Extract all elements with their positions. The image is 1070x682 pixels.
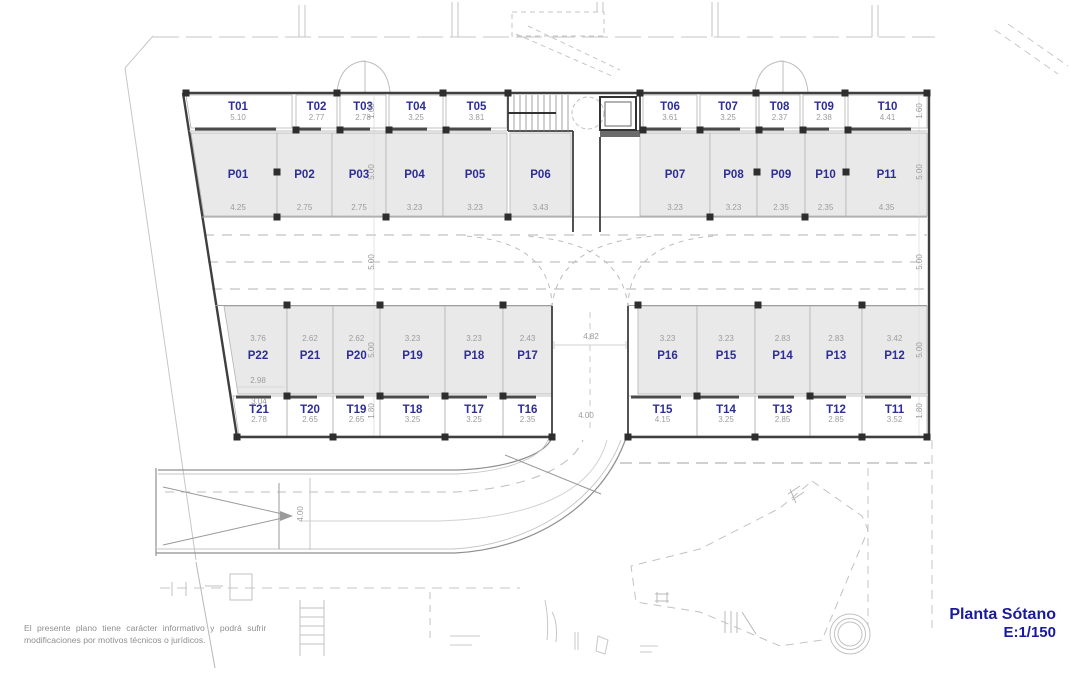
vertical-dim-right: 5.00 [915, 164, 924, 180]
unit-dim-P08: 3.23 [726, 203, 742, 212]
unit-label-T07: T07 [718, 101, 738, 113]
floor-plan-sheet: T015.10T022.77T032.78T043.25T053.81T063.… [0, 0, 1070, 682]
column [924, 434, 931, 441]
unit-dim-T07: 3.25 [720, 113, 736, 122]
column [500, 393, 507, 400]
unit-dim-T15: 4.15 [655, 415, 671, 424]
unit-dim-T19: 2.65 [349, 415, 365, 424]
unit-dim-P10: 2.35 [818, 203, 834, 212]
disclaimer-line-2: modificaciones por motivos técnicos o ju… [24, 634, 274, 646]
vertical-dim-left: 1.60 [367, 103, 376, 119]
unit-label-P22: P22 [248, 350, 268, 362]
basement-plan-drawing: T015.10T022.77T032.78T043.25T053.81T063.… [0, 0, 1070, 682]
column [500, 302, 507, 309]
unit-label-P13: P13 [826, 350, 846, 362]
unit-label-P08: P08 [723, 169, 744, 181]
unit-label-P21: P21 [300, 350, 321, 362]
column [635, 302, 642, 309]
column [383, 214, 390, 221]
column [293, 127, 300, 134]
overhead-ramp-outline [512, 12, 620, 76]
column [754, 169, 761, 176]
unit-dim-P18: 3.23 [466, 334, 482, 343]
unit-dim-T06: 3.61 [662, 113, 678, 122]
column [377, 302, 384, 309]
column [442, 393, 449, 400]
unit-dim-P06: 3.43 [533, 203, 549, 212]
column [755, 302, 762, 309]
column [337, 127, 344, 134]
disclaimer-note: El presente plano tiene carácter informa… [24, 622, 274, 646]
unit-dim-P13: 2.83 [828, 334, 844, 343]
unit-dim-T21: 2.78 [251, 415, 267, 424]
unit-dim-P21: 2.62 [302, 334, 318, 343]
column [443, 127, 450, 134]
column [505, 90, 512, 97]
sheet-title: Planta Sótano [836, 606, 1056, 624]
unit-label-T08: T08 [770, 101, 790, 113]
unit-dim-above-T21: 3.04 [251, 397, 267, 406]
column [386, 127, 393, 134]
unit-dim-T17: 3.25 [466, 415, 482, 424]
unit-label-T02: T02 [307, 101, 327, 113]
unit-label-P02: P02 [294, 169, 314, 181]
unit-dim-T02: 2.77 [309, 113, 325, 122]
unit-label-P19: P19 [402, 350, 422, 362]
column [807, 393, 814, 400]
column [274, 169, 281, 176]
unit-label-P01: P01 [228, 169, 249, 181]
column [284, 393, 291, 400]
unit-label-T05: T05 [467, 101, 487, 113]
unit-label-T10: T10 [878, 101, 898, 113]
column [753, 90, 760, 97]
column [845, 127, 852, 134]
unit-dim-P14: 2.83 [775, 334, 791, 343]
unit-dim-P16: 3.23 [660, 334, 676, 343]
vertical-dim-right: 1.80 [915, 403, 924, 419]
column [637, 90, 644, 97]
unit-label-P07: P07 [665, 169, 685, 181]
column [924, 90, 931, 97]
unit-label-P11: P11 [877, 169, 897, 181]
column [625, 434, 632, 441]
ramp-top-width-dim: 4.82 [583, 332, 599, 341]
vertical-dim-right: 5.00 [915, 342, 924, 358]
unit-label-P06: P06 [530, 169, 550, 181]
pool-ladder-icons [655, 486, 804, 634]
entrance-door-swings [337, 61, 808, 92]
unit-label-P17: P17 [517, 350, 537, 362]
unit-label-P05: P05 [465, 169, 486, 181]
unit-label-T01: T01 [228, 101, 248, 113]
column [234, 434, 241, 441]
column [842, 90, 849, 97]
unit-dim-P11: 4.35 [879, 203, 895, 212]
column [843, 169, 850, 176]
ramp-slope-arrow [163, 478, 310, 550]
unit-dim-T13: 2.85 [775, 415, 791, 424]
ramp-turning-guides [465, 236, 715, 308]
unit-dim-P02: 2.75 [297, 203, 313, 212]
vertical-dim-left: 1.80 [367, 403, 376, 419]
column [752, 434, 759, 441]
unit-dim-P07: 3.23 [667, 203, 683, 212]
unit-dim-P01: 4.25 [230, 203, 246, 212]
title-block: Planta Sótano E:1/150 [836, 606, 1056, 641]
column [549, 434, 556, 441]
unit-dim-T10: 4.41 [880, 113, 896, 122]
column [802, 214, 809, 221]
elevator [600, 97, 640, 137]
unit-dim-T04: 3.25 [408, 113, 424, 122]
column [697, 127, 704, 134]
column [442, 434, 449, 441]
unit-dim-T18: 3.25 [405, 415, 421, 424]
vertical-dim-right: 1.60 [915, 103, 924, 119]
unit-dim-P03: 2.75 [351, 203, 367, 212]
access-ramp-road [156, 438, 626, 556]
unit-label-P18: P18 [464, 350, 485, 362]
unit-dim-P09: 2.35 [773, 203, 789, 212]
column [440, 90, 447, 97]
unit-dim-P19: 3.23 [405, 334, 421, 343]
column [274, 214, 281, 221]
column [707, 214, 714, 221]
column [694, 393, 701, 400]
vertical-dim-left: 5.00 [367, 342, 376, 358]
unit-dim-T20: 2.65 [302, 415, 318, 424]
column [334, 90, 341, 97]
column [505, 214, 512, 221]
unit-dim-P17: 2.43 [520, 334, 536, 343]
overhead-wall-ticks [299, 2, 878, 37]
unit-dim-T05: 3.81 [469, 113, 485, 122]
column [859, 302, 866, 309]
access-ramp-width-dim: 4.00 [296, 506, 305, 522]
unit-dim-T14: 3.25 [718, 415, 734, 424]
sheet-scale: E:1/150 [836, 624, 1056, 641]
unit-label-T06: T06 [660, 101, 680, 113]
unit-dim-T16: 2.35 [520, 415, 536, 424]
unit-dim-T09: 2.38 [816, 113, 832, 122]
unit-dim-P12: 3.42 [887, 334, 903, 343]
unit-dim-P22: 3.76 [250, 334, 266, 343]
pool-outline [450, 481, 870, 654]
unit-label-P09: P09 [771, 169, 791, 181]
column [377, 393, 384, 400]
garden-marks [450, 600, 658, 654]
column [183, 90, 190, 97]
unit-dim-P05: 3.23 [467, 203, 483, 212]
vertical-dim-left: 5.00 [367, 254, 376, 270]
unit-dim-T08: 2.37 [772, 113, 788, 122]
unit-dim-T01: 5.10 [230, 113, 246, 122]
vertical-dim-left: 5.00 [367, 164, 376, 180]
unit-label-P20: P20 [346, 350, 366, 362]
column [284, 302, 291, 309]
column [800, 127, 807, 134]
unit-label-P10: P10 [815, 169, 835, 181]
unit-label-P12: P12 [884, 350, 904, 362]
unit-dim2-P22: 2.98 [250, 376, 266, 385]
unit-label-T04: T04 [406, 101, 426, 113]
unit-label-P04: P04 [404, 169, 425, 181]
unit-dim-P15: 3.23 [718, 334, 734, 343]
ramp-entry-width-dim: 4.00 [578, 411, 594, 420]
unit-label-P16: P16 [657, 350, 677, 362]
column [756, 127, 763, 134]
disclaimer-line-1: El presente plano tiene carácter informa… [24, 622, 274, 634]
unit-dim-P04: 3.23 [407, 203, 423, 212]
column [640, 127, 647, 134]
unit-label-T09: T09 [814, 101, 834, 113]
unit-label-P14: P14 [772, 350, 793, 362]
unit-label-P15: P15 [716, 350, 737, 362]
column [330, 434, 337, 441]
unit-dim-P20: 2.62 [349, 334, 365, 343]
unit-dim-T11: 3.52 [887, 415, 903, 424]
column [859, 434, 866, 441]
unit-cells: T015.10T022.77T032.78T043.25T053.81T063.… [186, 95, 927, 436]
unit-dim-T12: 2.85 [828, 415, 844, 424]
vertical-dim-right: 5.00 [915, 254, 924, 270]
